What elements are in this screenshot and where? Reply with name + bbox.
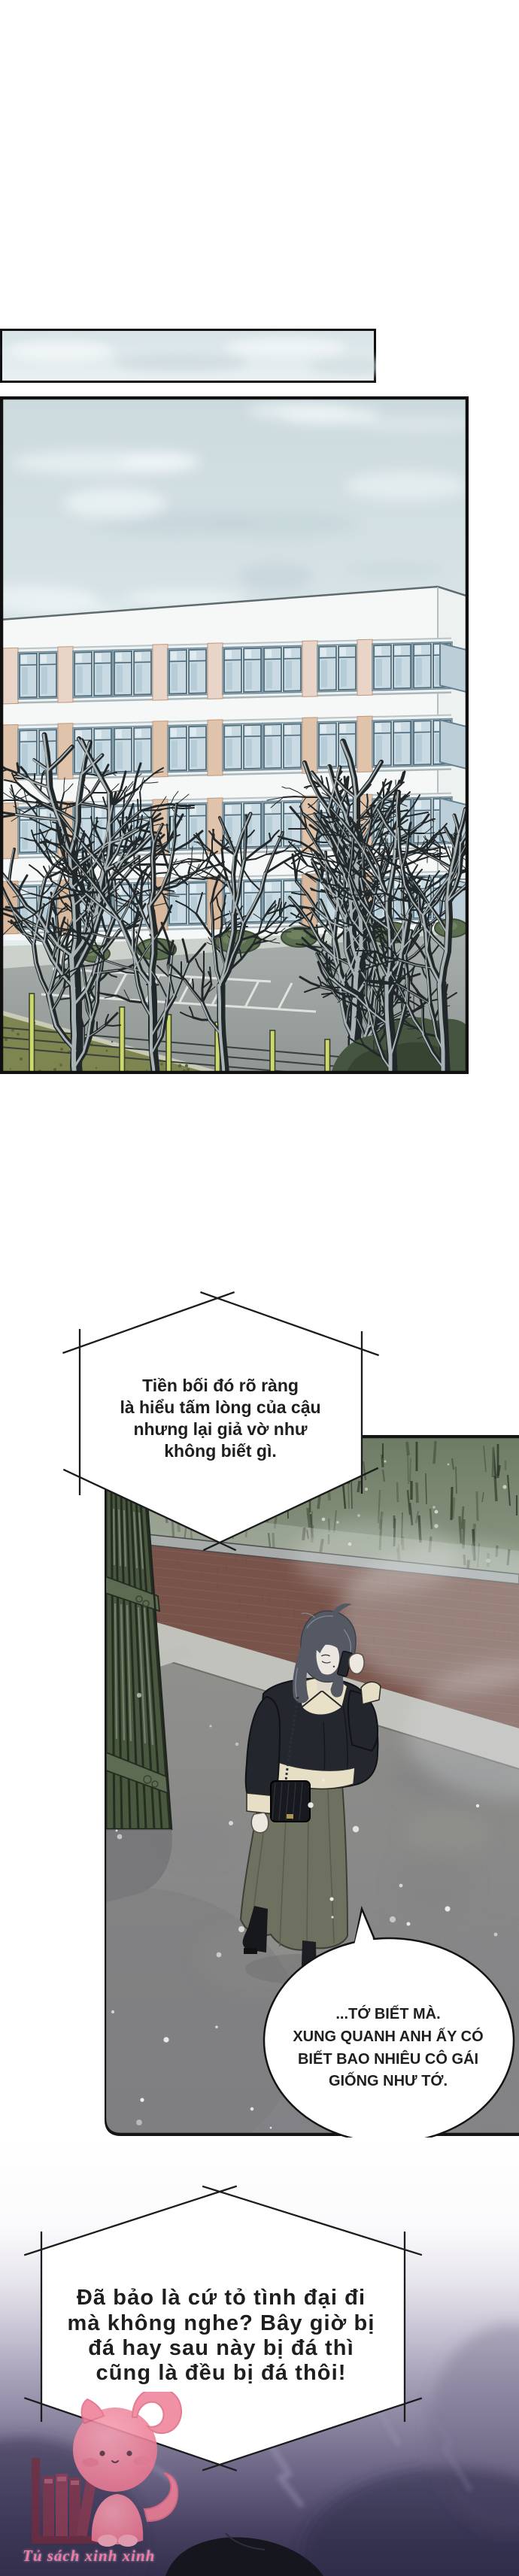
svg-text:Tiền bối đó rõ ràng: Tiền bối đó rõ ràng: [142, 1376, 299, 1395]
svg-text:cũng là đều bị đá thôi!: cũng là đều bị đá thôi!: [96, 2361, 346, 2385]
svg-text:GIỐNG NHƯ TỚ.: GIỐNG NHƯ TỚ.: [329, 2071, 448, 2089]
svg-text:là hiểu tấm lòng của cậu: là hiểu tấm lòng của cậu: [120, 1397, 320, 1417]
svg-text:...TỚ BIẾT MÀ.: ...TỚ BIẾT MÀ.: [335, 2004, 440, 2022]
svg-text:mà không nghe? Bây giờ bị: mà không nghe? Bây giờ bị: [67, 2311, 375, 2335]
svg-text:XUNG QUANH ANH ẤY CÓ: XUNG QUANH ANH ẤY CÓ: [293, 2027, 483, 2045]
svg-text:nhưng lại giả vờ như: nhưng lại giả vờ như: [133, 1419, 307, 1439]
svg-text:đá hay sau này bị đá thì: đá hay sau này bị đá thì: [88, 2336, 354, 2360]
svg-text:Đã bảo là cứ tỏ tình đại đi: Đã bảo là cứ tỏ tình đại đi: [77, 2286, 366, 2310]
svg-text:không biết gì.: không biết gì.: [164, 1441, 277, 1461]
svg-text:BIẾT BAO NHIÊU CÔ GÁI: BIẾT BAO NHIÊU CÔ GÁI: [298, 2050, 478, 2068]
